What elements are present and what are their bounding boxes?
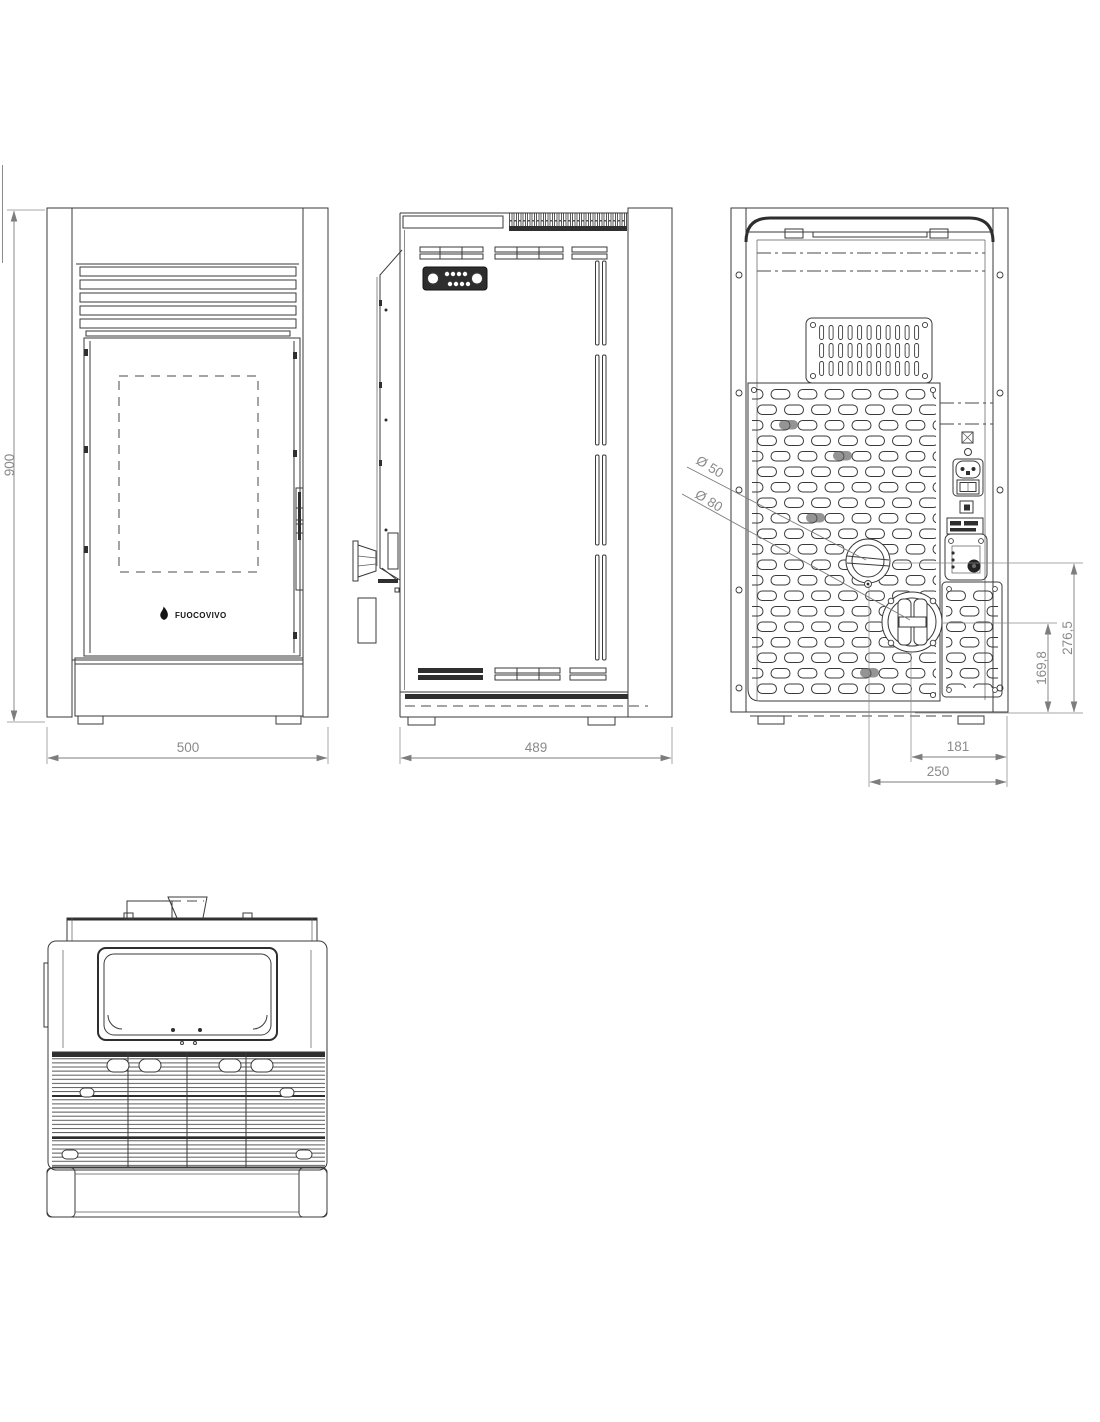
screw	[922, 322, 927, 327]
connector-pin	[466, 282, 470, 286]
screw	[888, 640, 894, 646]
brand-logo: FUOCOVIVO	[160, 607, 226, 621]
side-top-comb-grille	[509, 213, 627, 226]
label-block	[950, 528, 976, 532]
screw	[736, 272, 742, 278]
screw	[997, 487, 1003, 493]
vent-slot-vertical	[603, 261, 607, 345]
front-left-side-panel	[47, 208, 72, 717]
probe-bracket	[945, 534, 987, 580]
door-frame	[84, 338, 300, 656]
door-glass-outline	[119, 376, 258, 572]
screw	[997, 272, 1003, 278]
side-back-cover	[628, 208, 672, 717]
height-dimension-label: 900	[2, 454, 17, 477]
louver-slat	[80, 306, 296, 315]
base-dark-band	[405, 694, 628, 699]
shaded-perforation	[833, 451, 852, 461]
grille-top-band	[52, 1052, 325, 1057]
width-dimension-label: 500	[177, 740, 200, 755]
side-door-profile	[377, 250, 402, 580]
foot	[276, 716, 301, 724]
subpanel-perforations	[946, 588, 998, 688]
lower-bracket	[358, 598, 376, 643]
label-plate	[947, 518, 983, 534]
foot	[758, 716, 784, 724]
connector-screw	[472, 273, 483, 284]
socket-ground-hole	[966, 471, 970, 475]
base-plinth	[75, 658, 303, 716]
vent-slot	[418, 668, 483, 673]
lid-hole	[194, 1042, 197, 1045]
reset-button-cap	[964, 505, 970, 511]
screw	[751, 387, 756, 392]
vent-slot	[570, 675, 606, 680]
upper-vent-plate	[806, 318, 932, 383]
hinge-mark	[84, 546, 88, 553]
connector-pin	[445, 272, 449, 276]
hinge-mark	[84, 349, 88, 356]
screw	[888, 598, 894, 604]
handle-link	[382, 568, 397, 580]
front-right-side-panel	[303, 208, 328, 717]
foot	[588, 717, 615, 725]
top-lid-profile	[746, 218, 993, 242]
flue-diameter-label: Ø 80	[692, 487, 725, 515]
vent-slot-vertical	[596, 261, 600, 345]
hopper-opening-inner	[104, 954, 271, 1035]
shaded-perforation	[860, 668, 879, 678]
air-intake-pipe	[852, 545, 884, 577]
connector-pin	[454, 282, 458, 286]
pellet-stove-technical-drawing: FUOCOVIVO 900 500	[0, 0, 1100, 1422]
screw	[993, 587, 998, 592]
vent-slot	[418, 675, 483, 680]
rivet-dot	[385, 529, 388, 532]
vent-slot	[570, 668, 606, 673]
flue-baffle-cross	[899, 617, 926, 627]
air-intake-diameter-label: Ø 50	[693, 453, 726, 481]
vent-slot	[572, 247, 607, 252]
vent-slot	[572, 254, 607, 259]
vent-slot	[420, 247, 483, 252]
top-view	[44, 897, 327, 1217]
vent-slot-vertical	[603, 455, 607, 545]
technical-drawing-page: FUOCOVIVO 900 500	[0, 0, 1100, 1422]
hinge-mark	[379, 300, 382, 306]
lid-hole	[181, 1042, 184, 1045]
hopper-corner-curl	[108, 1015, 122, 1029]
side-base	[400, 692, 672, 725]
top-front-grille	[52, 1052, 325, 1167]
foot	[408, 717, 435, 725]
vent-slot	[495, 675, 560, 680]
base-foot-right	[299, 1168, 327, 1217]
probe-connector-center	[972, 564, 976, 568]
handle-shaft	[388, 533, 398, 569]
knob-cone	[358, 545, 376, 577]
air-intake-height-label: 276,5	[1060, 621, 1075, 655]
vent-slot	[420, 254, 483, 259]
hinge-mark	[379, 460, 382, 466]
grille-oval-cutout	[219, 1059, 241, 1072]
screw	[930, 598, 936, 604]
foot	[78, 716, 103, 724]
top-plate	[127, 901, 172, 918]
hinge-mark	[84, 446, 88, 453]
grille-oval-cutout	[62, 1150, 78, 1159]
flue-offset-label: 181	[947, 739, 970, 754]
pin-dot	[951, 558, 954, 561]
connector-pin	[463, 272, 467, 276]
pin-dot	[951, 565, 954, 568]
top-base	[47, 1168, 327, 1217]
knob-cap	[353, 541, 358, 581]
socket-pin-hole	[961, 467, 965, 471]
depth-dimension-label: 489	[525, 740, 548, 755]
front-view: FUOCOVIVO	[3, 165, 329, 724]
grille-oval-cutout	[251, 1059, 273, 1072]
screw	[930, 692, 935, 697]
louver-lip	[86, 331, 290, 336]
rivet-dot	[385, 309, 388, 312]
pellet-hopper-lid	[98, 948, 277, 1045]
connector-pin	[448, 282, 452, 286]
vent-slot-vertical	[596, 555, 600, 660]
side-view	[353, 208, 672, 725]
screw	[736, 487, 742, 493]
side-upper-vents	[420, 247, 607, 259]
lid-pin	[171, 1028, 175, 1032]
handle-pivot	[378, 579, 398, 583]
flue-outlet-port	[882, 592, 942, 652]
screw	[947, 587, 952, 592]
lid-latch	[785, 229, 803, 238]
rivet-dot	[385, 419, 388, 422]
side-rear-vertical-slots	[596, 261, 607, 660]
grille-oval-cutout	[139, 1059, 161, 1072]
latch-mark	[293, 450, 297, 457]
connector-pin	[451, 272, 455, 276]
pin-dot	[951, 551, 954, 554]
flue-height-label: 169,8	[1034, 651, 1049, 685]
louver-slat	[80, 267, 296, 276]
hopper-opening-outer	[98, 948, 277, 1040]
shaded-perforation	[806, 513, 825, 523]
screw	[930, 387, 935, 392]
vent-slot	[495, 254, 563, 259]
vent-slot	[495, 668, 560, 673]
hopper-corner-curl	[253, 1015, 267, 1029]
side-connector-plate	[423, 267, 487, 290]
grille-oval-cutout	[280, 1088, 294, 1097]
screw	[947, 688, 952, 693]
lid-pin	[198, 1028, 202, 1032]
flue-funnel	[168, 897, 207, 918]
latch-mark	[293, 352, 297, 359]
back-view	[731, 208, 1008, 724]
label-block	[964, 521, 978, 526]
screw	[810, 373, 815, 378]
damper-screw-center	[867, 583, 870, 586]
screw	[922, 373, 927, 378]
knob-line	[358, 564, 376, 566]
screw	[930, 640, 936, 646]
vent-slot-vertical	[596, 455, 600, 545]
front-door: FUOCOVIVO	[84, 338, 303, 656]
rear-band	[67, 918, 317, 941]
shaded-perforation	[779, 420, 798, 430]
vent-slot-vertical	[603, 355, 607, 445]
hinge-mark	[379, 382, 382, 388]
vent-slot	[495, 247, 563, 252]
screw	[736, 390, 742, 396]
air-intake-offset-label: 250	[927, 764, 950, 779]
label-block	[950, 521, 961, 526]
base-outline	[47, 1168, 327, 1217]
side-top-comb-base	[509, 226, 627, 231]
screw	[979, 539, 984, 544]
lid-latch	[930, 229, 948, 238]
socket-face	[956, 461, 980, 478]
grille-oval-cutout	[80, 1088, 94, 1097]
vent-slot-vertical	[603, 555, 607, 660]
socket-pin-hole	[972, 467, 976, 471]
grille-oval-cutout	[107, 1059, 129, 1072]
louver-slat	[80, 293, 296, 302]
screw	[993, 688, 998, 693]
front-louver-grille	[80, 267, 296, 336]
latch-mark	[293, 632, 297, 639]
screw	[736, 685, 742, 691]
grille-lines	[52, 1052, 325, 1167]
flame-icon	[160, 607, 168, 621]
foot	[958, 716, 984, 724]
knob-line	[358, 556, 376, 558]
side-lower-vents	[418, 668, 606, 680]
louver-slat	[80, 280, 296, 289]
indicator-hole	[965, 449, 972, 456]
logo-text: FUOCOVIVO	[175, 611, 227, 620]
screw	[997, 390, 1003, 396]
side-hinge-rail	[44, 963, 48, 1027]
screw	[949, 539, 954, 544]
lid-hinge-bar	[813, 232, 927, 237]
lower-right-panel	[942, 582, 1002, 697]
connector-pin	[460, 282, 464, 286]
side-handle-knob	[353, 533, 399, 643]
rating-label	[947, 518, 983, 534]
connector-pin	[457, 272, 461, 276]
side-top-band	[403, 216, 503, 228]
vent-plate-slots	[816, 324, 920, 378]
side-dimension: 489	[400, 727, 672, 764]
screw	[736, 587, 742, 593]
connector-screw	[428, 273, 439, 284]
power-inlet	[953, 459, 983, 496]
latch-detail	[395, 588, 399, 592]
front-base	[75, 658, 303, 724]
base-foot-left	[47, 1168, 75, 1217]
louver-slat	[80, 319, 296, 328]
grille-oval-cutout	[296, 1150, 312, 1159]
door-profile-edge	[380, 250, 402, 580]
screw	[810, 322, 815, 327]
vent-slot-vertical	[596, 355, 600, 445]
